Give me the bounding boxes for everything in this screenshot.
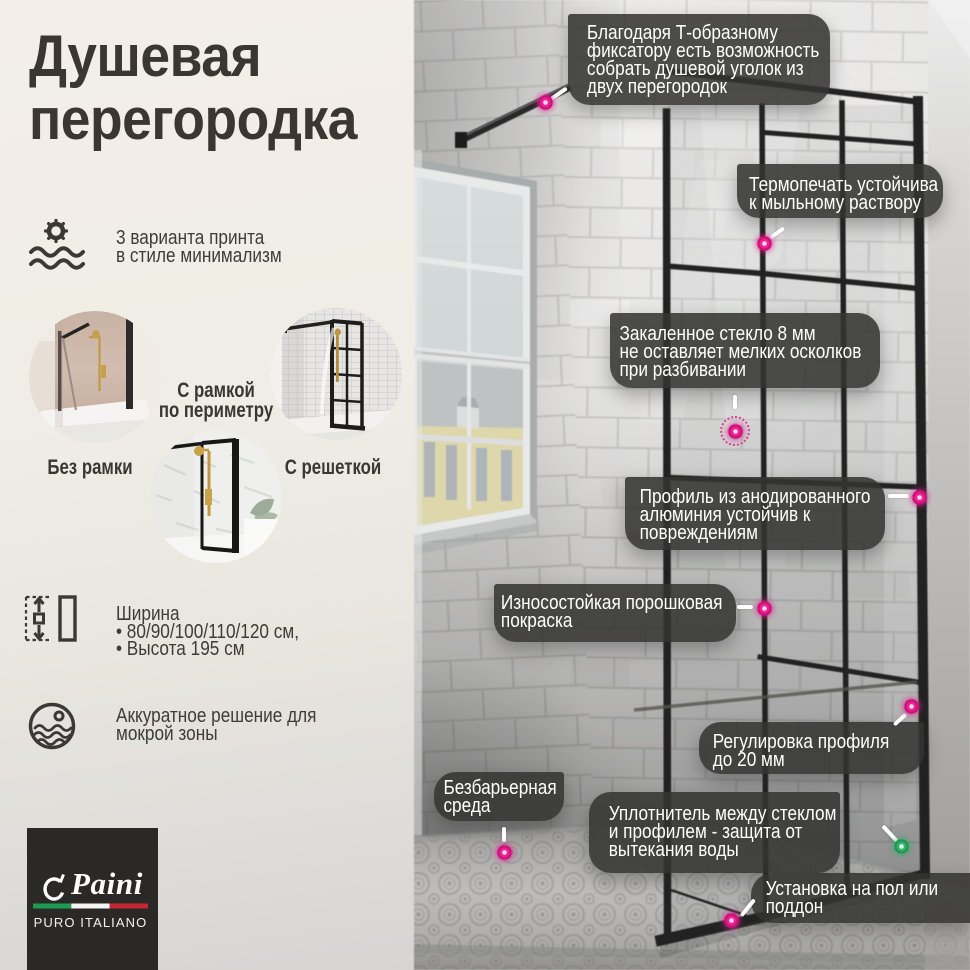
- svg-text:Paini: Paini: [70, 866, 143, 901]
- svg-text:PURO ITALIANO: PURO ITALIANO: [34, 915, 148, 930]
